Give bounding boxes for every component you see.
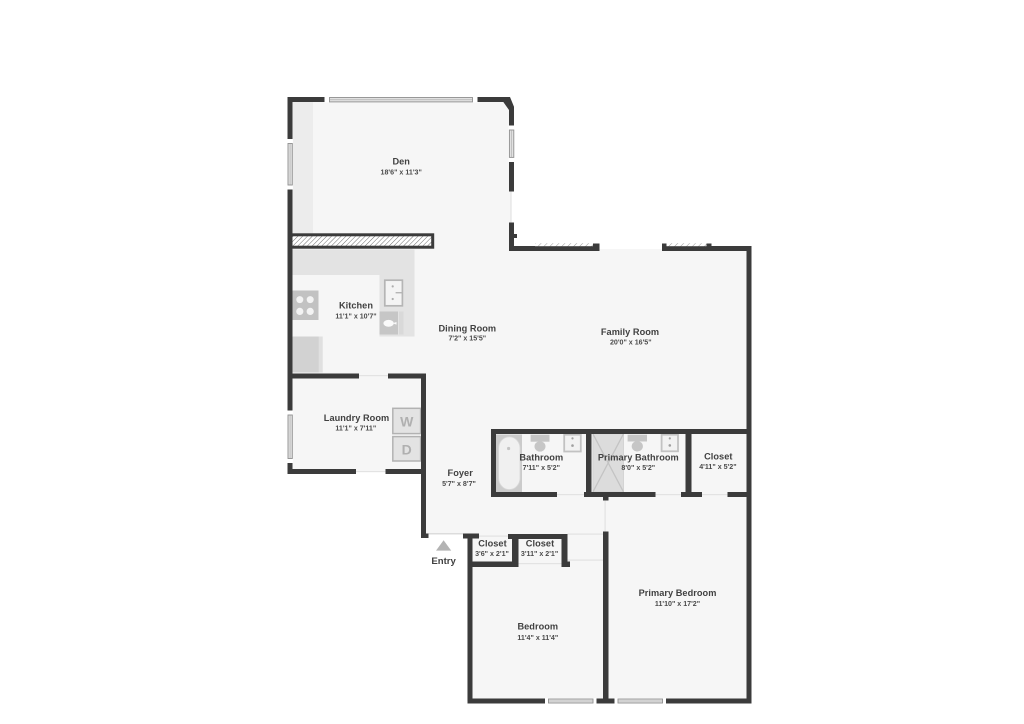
svg-text:4'11" x 5'2": 4'11" x 5'2" [699,463,736,471]
svg-text:8'0" x 5'2": 8'0" x 5'2" [621,464,655,472]
svg-text:Kitchen: Kitchen [339,300,373,310]
svg-text:Entry: Entry [431,556,456,567]
svg-text:7'2" x 15'5": 7'2" x 15'5" [448,334,486,342]
svg-text:Closet: Closet [526,539,554,549]
svg-text:11'10" x 17'2": 11'10" x 17'2" [655,600,700,608]
svg-text:3'11" x 2'1": 3'11" x 2'1" [521,550,558,558]
svg-text:7'11" x 5'2": 7'11" x 5'2" [523,464,560,472]
svg-text:5'7" x 8'7": 5'7" x 8'7" [442,480,476,488]
svg-text:Primary Bathroom: Primary Bathroom [598,453,679,463]
svg-text:11'4" x 11'4": 11'4" x 11'4" [517,634,558,642]
svg-text:Bedroom: Bedroom [517,621,558,631]
svg-text:Bathroom: Bathroom [519,453,563,463]
svg-text:Den: Den [392,156,410,166]
svg-text:Dining Room: Dining Room [438,323,496,333]
svg-text:Primary Bedroom: Primary Bedroom [639,588,717,598]
svg-text:11'1" x 10'7": 11'1" x 10'7" [335,312,376,320]
svg-text:D: D [402,441,412,457]
svg-text:20'0" x 16'5": 20'0" x 16'5" [610,339,652,347]
svg-text:3'6" x 2'1": 3'6" x 2'1" [475,550,509,558]
svg-text:Closet: Closet [704,452,732,462]
svg-text:Laundry Room: Laundry Room [324,413,389,423]
svg-text:Foyer: Foyer [448,468,474,478]
svg-text:Closet: Closet [478,539,506,549]
svg-text:11'1" x 7'11": 11'1" x 7'11" [335,425,376,433]
svg-text:Family Room: Family Room [601,327,659,337]
svg-text:18'6" x 11'3": 18'6" x 11'3" [381,169,422,177]
svg-text:W: W [400,414,414,430]
